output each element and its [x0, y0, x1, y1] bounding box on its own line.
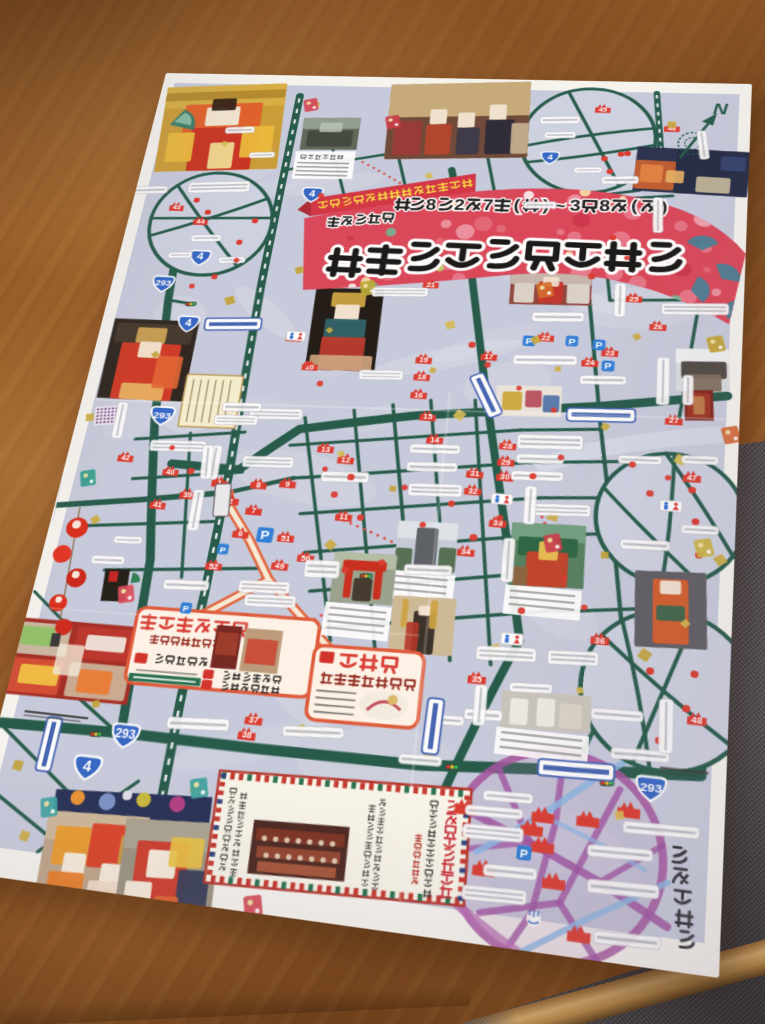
svg-text:P: P [568, 336, 576, 347]
svg-text:293: 293 [114, 726, 137, 742]
svg-text:45: 45 [598, 108, 608, 114]
svg-text:24: 24 [585, 360, 596, 368]
svg-text:(: ( [513, 197, 521, 215]
svg-text:23: 23 [605, 350, 616, 358]
svg-text:47: 47 [687, 475, 698, 483]
svg-text:293: 293 [640, 780, 664, 796]
svg-text:36: 36 [594, 637, 606, 646]
svg-text:48: 48 [691, 717, 703, 727]
svg-text:30: 30 [500, 474, 511, 482]
svg-text:P: P [595, 340, 603, 351]
svg-text:35: 35 [471, 676, 483, 686]
svg-text:P: P [519, 846, 528, 861]
svg-text:7: 7 [482, 197, 494, 215]
svg-text:293: 293 [154, 278, 173, 288]
svg-text:34: 34 [460, 549, 472, 558]
svg-text:33: 33 [492, 520, 503, 529]
svg-text:3: 3 [569, 197, 581, 215]
svg-text:8: 8 [425, 196, 437, 213]
svg-text:22: 22 [541, 335, 552, 342]
svg-text:17: 17 [484, 354, 495, 361]
svg-text:8: 8 [599, 197, 611, 215]
svg-text:29: 29 [501, 459, 512, 467]
svg-text:N: N [712, 101, 729, 118]
svg-text:293: 293 [152, 410, 172, 422]
svg-text:26: 26 [653, 324, 664, 331]
svg-text:27: 27 [669, 418, 680, 426]
svg-text:2: 2 [453, 196, 465, 214]
svg-text:(: ( [631, 197, 638, 215]
svg-text:25: 25 [629, 296, 640, 303]
svg-text:31: 31 [469, 471, 480, 479]
svg-text:32: 32 [467, 488, 478, 496]
svg-text:P: P [604, 361, 612, 372]
svg-text:28: 28 [502, 443, 513, 451]
